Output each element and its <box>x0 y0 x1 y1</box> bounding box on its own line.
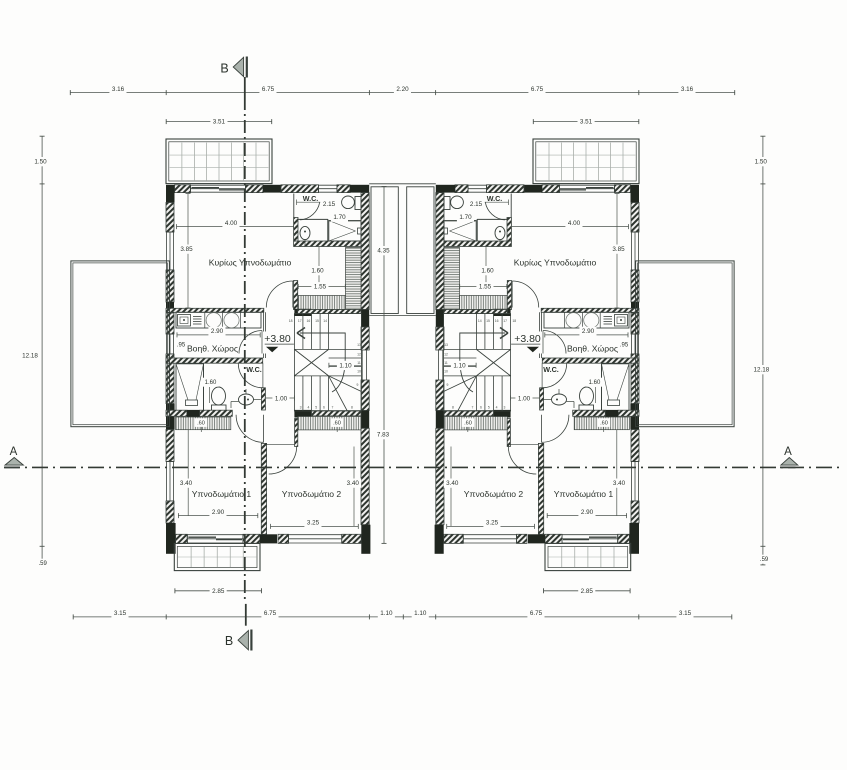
svg-text:Βοηθ. Χώρος: Βοηθ. Χώρος <box>567 344 618 354</box>
svg-text:.59: .59 <box>39 561 48 567</box>
svg-text:.95: .95 <box>620 343 629 349</box>
svg-text:7: 7 <box>472 406 474 410</box>
svg-text:B: B <box>225 634 233 648</box>
svg-text:18: 18 <box>289 319 293 323</box>
svg-text:Υπνοδωμάτιο 2: Υπνοδωμάτιο 2 <box>282 489 342 499</box>
svg-text:A: A <box>784 446 792 458</box>
svg-text:3.16: 3.16 <box>112 86 125 93</box>
svg-text:2.90: 2.90 <box>581 509 594 516</box>
svg-text:.59: .59 <box>760 557 769 563</box>
svg-text:.60: .60 <box>197 420 205 426</box>
svg-text:7.83: 7.83 <box>377 432 390 439</box>
svg-text:3: 3 <box>503 406 505 410</box>
svg-text:1.50: 1.50 <box>34 159 47 166</box>
svg-text:5: 5 <box>315 406 317 410</box>
svg-text:1.50: 1.50 <box>755 159 768 166</box>
svg-text:B: B <box>220 62 228 76</box>
svg-text:2.90: 2.90 <box>212 509 225 516</box>
svg-text:12.18: 12.18 <box>754 367 770 374</box>
svg-text:6.75: 6.75 <box>531 86 544 93</box>
svg-text:.60: .60 <box>464 420 472 426</box>
svg-text:5: 5 <box>488 406 490 410</box>
svg-text:2.15: 2.15 <box>470 201 483 208</box>
svg-text:3.25: 3.25 <box>486 520 499 527</box>
svg-text:Υπνοδωμάτιο 1: Υπνοδωμάτιο 1 <box>554 489 614 499</box>
svg-text:3.15: 3.15 <box>679 610 692 617</box>
svg-text:13: 13 <box>357 343 361 347</box>
svg-text:1.60: 1.60 <box>311 268 324 275</box>
svg-text:6: 6 <box>480 406 482 410</box>
svg-text:6.75: 6.75 <box>264 610 277 617</box>
svg-text:6.75: 6.75 <box>262 86 275 93</box>
svg-text:14: 14 <box>478 319 482 323</box>
svg-text:+3.80: +3.80 <box>514 333 541 345</box>
svg-text:11: 11 <box>444 361 448 365</box>
svg-text:6: 6 <box>323 406 325 410</box>
svg-text:2.90: 2.90 <box>211 328 224 335</box>
svg-text:1.60: 1.60 <box>205 380 217 386</box>
svg-text:9: 9 <box>357 383 359 387</box>
svg-text:.95: .95 <box>177 343 186 349</box>
svg-text:A: A <box>10 446 18 458</box>
svg-text:3.40: 3.40 <box>613 480 626 487</box>
svg-text:3.51: 3.51 <box>213 119 226 126</box>
svg-text:13: 13 <box>444 343 448 347</box>
svg-text:Βοηθ. Χώρος: Βοηθ. Χώρος <box>187 344 238 354</box>
svg-text:1.55: 1.55 <box>479 284 492 291</box>
svg-text:9: 9 <box>447 383 449 387</box>
svg-text:3.25: 3.25 <box>307 520 320 527</box>
svg-text:1.55: 1.55 <box>314 284 327 291</box>
svg-text:3.15: 3.15 <box>114 610 127 617</box>
svg-text:2.15: 2.15 <box>323 201 336 208</box>
svg-text:W.C.: W.C. <box>246 365 262 374</box>
svg-text:1.60: 1.60 <box>589 380 601 386</box>
svg-text:1.10: 1.10 <box>453 362 466 369</box>
svg-text:12.18: 12.18 <box>22 353 38 360</box>
svg-text:3.40: 3.40 <box>446 480 459 487</box>
svg-text:10: 10 <box>357 370 361 374</box>
svg-text:2.85: 2.85 <box>581 588 594 595</box>
svg-text:3.85: 3.85 <box>180 246 193 253</box>
svg-text:3.85: 3.85 <box>612 246 625 253</box>
svg-text:Κυρίως Υπνοδωμάτιο: Κυρίως Υπνοδωμάτιο <box>209 258 292 268</box>
svg-text:15: 15 <box>486 319 490 323</box>
svg-text:12: 12 <box>357 353 361 357</box>
svg-text:12: 12 <box>444 353 448 357</box>
svg-text:17: 17 <box>503 319 507 323</box>
svg-text:7: 7 <box>332 406 334 410</box>
svg-text:1.00: 1.00 <box>518 395 531 402</box>
svg-text:.60: .60 <box>600 420 608 426</box>
svg-text:1.10: 1.10 <box>339 362 352 369</box>
svg-text:.60: .60 <box>333 420 341 426</box>
svg-text:2.85: 2.85 <box>212 588 225 595</box>
svg-text:18: 18 <box>512 319 516 323</box>
svg-text:3.51: 3.51 <box>580 119 593 126</box>
svg-text:W.C.: W.C. <box>543 365 559 374</box>
svg-text:W.C.: W.C. <box>487 194 503 203</box>
svg-text:3.16: 3.16 <box>681 86 694 93</box>
svg-text:8: 8 <box>452 406 454 410</box>
svg-text:1.00: 1.00 <box>275 395 288 402</box>
svg-text:4.00: 4.00 <box>225 220 238 227</box>
svg-text:1.70: 1.70 <box>333 214 346 221</box>
svg-text:4.35: 4.35 <box>377 248 390 255</box>
svg-text:4: 4 <box>496 406 498 410</box>
svg-text:+3.80: +3.80 <box>264 333 291 345</box>
svg-text:4: 4 <box>307 406 309 410</box>
svg-text:2.90: 2.90 <box>582 328 595 335</box>
svg-text:6.75: 6.75 <box>530 610 543 617</box>
svg-text:11: 11 <box>357 361 361 365</box>
svg-text:17: 17 <box>298 319 302 323</box>
svg-text:10: 10 <box>444 370 448 374</box>
svg-text:3.40: 3.40 <box>347 480 360 487</box>
svg-text:16: 16 <box>495 319 499 323</box>
svg-text:15: 15 <box>315 319 319 323</box>
svg-text:Κυρίως Υπνοδωμάτιο: Κυρίως Υπνοδωμάτιο <box>514 258 597 268</box>
svg-text:14: 14 <box>323 319 327 323</box>
svg-text:1.70: 1.70 <box>459 214 472 221</box>
svg-text:4.00: 4.00 <box>568 220 581 227</box>
svg-text:2.20: 2.20 <box>396 86 409 93</box>
svg-text:Υπνοδωμάτιο 1: Υπνοδωμάτιο 1 <box>192 489 252 499</box>
svg-text:16: 16 <box>307 319 311 323</box>
svg-text:8: 8 <box>351 406 353 410</box>
svg-text:1.10: 1.10 <box>380 610 393 617</box>
svg-text:1.60: 1.60 <box>481 268 494 275</box>
svg-text:3.40: 3.40 <box>180 480 193 487</box>
svg-text:1.10: 1.10 <box>414 610 427 617</box>
svg-text:3: 3 <box>300 406 302 410</box>
svg-text:Υπνοδωμάτιο 2: Υπνοδωμάτιο 2 <box>464 489 524 499</box>
svg-text:W.C.: W.C. <box>303 194 319 203</box>
